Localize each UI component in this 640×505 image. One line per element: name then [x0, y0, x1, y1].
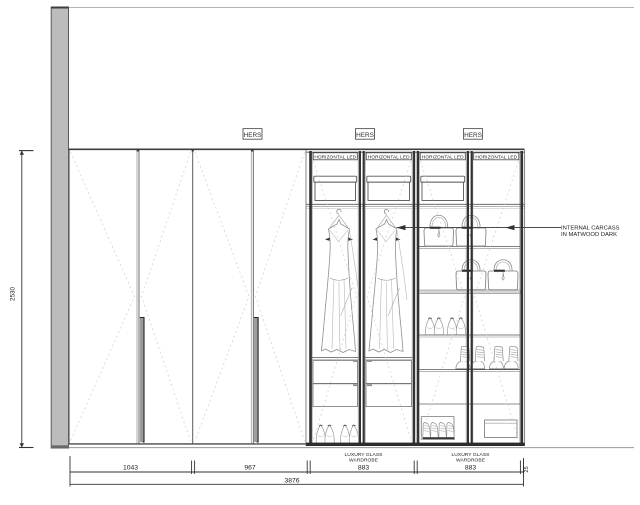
svg-text:LUXURY GLASS: LUXURY GLASS: [345, 452, 384, 458]
svg-text:HORIZONTAL LED: HORIZONTAL LED: [368, 155, 410, 161]
svg-text:IN MATWOOD DARK: IN MATWOOD DARK: [561, 232, 617, 238]
svg-text:3876: 3876: [284, 478, 299, 485]
svg-text:883: 883: [358, 465, 370, 472]
svg-text:HORIZONTAL LED: HORIZONTAL LED: [422, 155, 464, 161]
svg-text:INTERNAL CARCASS: INTERNAL CARCASS: [561, 226, 620, 232]
svg-text:HORIZONTAL LED: HORIZONTAL LED: [475, 155, 517, 161]
svg-text:967: 967: [244, 465, 256, 472]
svg-text:LUXURY GLASS: LUXURY GLASS: [452, 452, 491, 458]
svg-text:HERS: HERS: [464, 132, 482, 139]
svg-text:HERS: HERS: [356, 132, 374, 139]
svg-text:HORIZONTAL LED: HORIZONTAL LED: [314, 155, 356, 161]
svg-text:883: 883: [465, 465, 477, 472]
svg-text:2530: 2530: [10, 287, 17, 302]
svg-text:WARDROBE: WARDROBE: [456, 458, 486, 464]
svg-text:1043: 1043: [123, 465, 138, 472]
svg-text:25: 25: [524, 466, 530, 472]
svg-text:HERS: HERS: [244, 132, 262, 139]
svg-text:WARDROBE: WARDROBE: [349, 458, 379, 464]
